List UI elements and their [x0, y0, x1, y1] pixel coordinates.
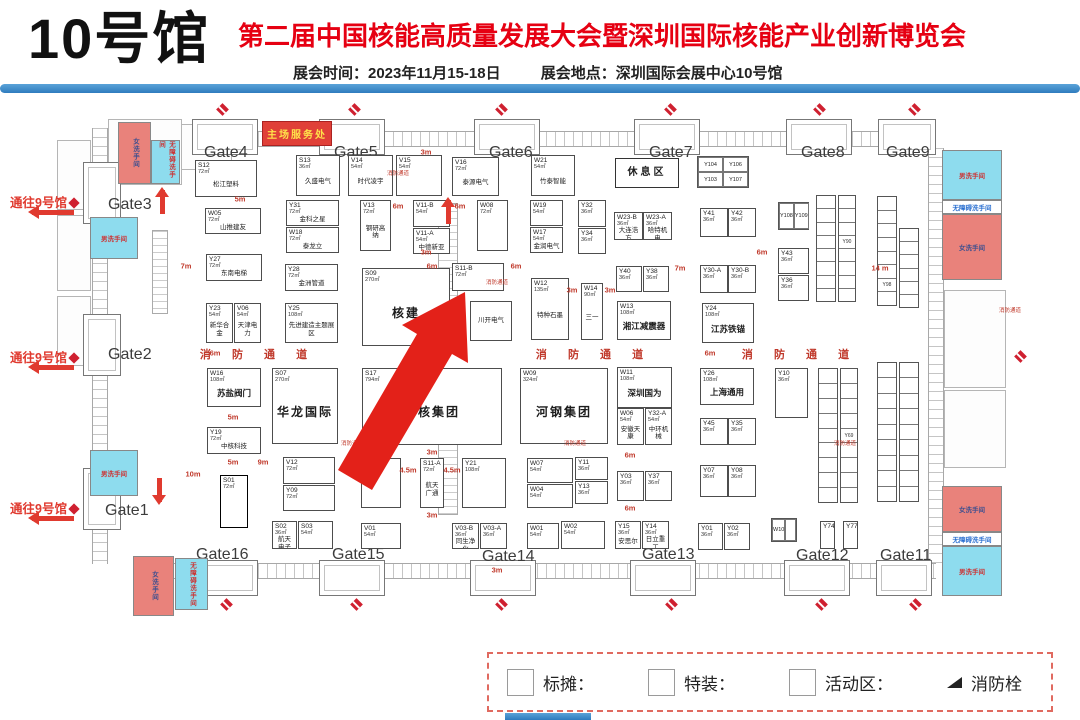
booth-S03: S0354㎡ [298, 521, 333, 549]
booth-Y30-B: Y30-B36㎡ [728, 265, 756, 293]
booth-Y43: Y4336㎡ [778, 248, 809, 274]
hall-number: 10号馆 [28, 0, 210, 75]
dimension-label: 3m [567, 286, 578, 295]
legend-label: 活动区： [825, 670, 893, 695]
legend-label: 消防栓 [971, 670, 1022, 695]
dimension-label: 9m [258, 458, 269, 467]
booth-W09: W09324㎡河钢集团 [520, 368, 608, 444]
fire-lane-label-small: 消防通道 [341, 439, 363, 447]
gate-label: Gate3 [108, 196, 152, 214]
booth-Y45: Y4536㎡ [700, 418, 728, 445]
booth-W04: W0454㎡ [527, 484, 573, 508]
standard-booth-swatch [507, 669, 534, 696]
fire-hydrant-icon [947, 677, 962, 688]
small-booth-strip: Y69 [840, 368, 858, 503]
dimension-label: 6m [705, 349, 716, 358]
booth-Y15: Y1536㎡安思尔 [615, 521, 641, 549]
booth-Y11: Y1136㎡ [575, 457, 608, 480]
legend-item-fire-hydrant: 消防栓 [947, 670, 1022, 695]
booth-Y36: Y3636㎡ [778, 275, 809, 301]
fire-hydrant-marker [348, 103, 361, 116]
booth-Y09: Y0972㎡ [283, 485, 335, 511]
booth-W13: W13108㎡湘江减震器 [617, 301, 671, 340]
gate-module [876, 560, 932, 596]
booth-W18: W1872㎡泰龙立 [286, 227, 339, 253]
booth-S01: S0172㎡ [220, 475, 248, 528]
left-arrow-icon [32, 516, 74, 521]
gate-label: Gate11 [880, 547, 931, 565]
fire-lane-label: 消 防 通 道 [536, 346, 652, 362]
booth-Y40: Y4036㎡ [616, 266, 642, 292]
booth-V05: V05108㎡ [361, 458, 401, 508]
booth-S12: S1272㎡松江塑料 [195, 160, 257, 197]
up-arrow-icon [160, 190, 165, 214]
dimension-label: 6m [625, 504, 636, 513]
booth-Y35: Y3536㎡ [728, 418, 756, 445]
booth-S13: S1336㎡久盛电气 [296, 155, 340, 196]
booth-W23-A: W23-A36㎡哈特机电 [643, 212, 672, 240]
dimension-label: 3m [492, 566, 503, 575]
booth-Y10: Y1036㎡ [775, 368, 808, 418]
booth-V03-A: V03-A36㎡ [480, 523, 507, 549]
outer-structure [944, 390, 1006, 468]
booth-W01: W0154㎡ [527, 523, 559, 549]
gate-label: Gate14 [482, 548, 534, 566]
fire-hydrant-marker [350, 598, 363, 611]
booth-Y07: Y0736㎡ [700, 465, 728, 497]
dimension-label: 6m [393, 202, 404, 211]
dimension-label: 10m [185, 470, 200, 479]
fire-lane-label: 消 防 通 道 [742, 346, 858, 362]
small-booth-grid: Y104Y106Y103Y107 [697, 156, 749, 188]
booth-W06: W0654㎡安徽天康 [617, 408, 644, 445]
booth-Y27: Y2772㎡东南电梯 [206, 254, 262, 281]
dimension-label: 3m [421, 248, 432, 257]
fire-lane-label: 消 防 通 道 [200, 346, 316, 362]
booth-Y21: Y21108㎡ [462, 458, 506, 508]
booth-W08: W0872㎡ [477, 200, 508, 251]
restroom-men_room: 男洗手间 [942, 546, 1002, 596]
fire-hydrant-marker [665, 598, 678, 611]
restroom-women_room: 女洗手间 [118, 122, 151, 184]
booth-W11: W11108㎡深圳国为 [617, 367, 672, 408]
diamond-icon [68, 352, 79, 363]
booth: 川开电气 [470, 301, 512, 341]
diamond-icon [68, 503, 79, 514]
service-desk-label: 主场服务处 [267, 126, 327, 141]
restroom-men_room: 男洗手间 [942, 150, 1002, 200]
restroom-access_room: 无障碍洗手间 [942, 200, 1002, 214]
small-booth-grid: W10 [771, 518, 797, 542]
expo-time: 展会时间：2023年11月15-18日 [293, 65, 501, 82]
outer-structure [57, 215, 91, 291]
booth-W07: W0754㎡ [527, 458, 573, 483]
booth-S07: S07270㎡华龙国际 [272, 368, 338, 444]
dimension-label: 6m [511, 262, 522, 271]
booth-Y01: Y0136㎡ [698, 523, 723, 550]
gate-module [319, 560, 385, 596]
gate-label: Gate2 [108, 346, 152, 364]
booth-V12: V1272㎡ [283, 457, 335, 484]
booth-V16: V1672㎡泰源电气 [452, 157, 499, 196]
gate-label: Gate8 [801, 144, 845, 162]
fire-hydrant-marker [495, 598, 508, 611]
dimension-label: 5m [228, 413, 239, 422]
dimension-label: 14 m [871, 264, 888, 273]
restroom-access_room: 无障碍洗手间 [151, 140, 180, 184]
restroom-access_room: 无障碍洗手间 [175, 558, 208, 610]
small-booth-strip [818, 368, 838, 503]
special-booth-swatch [648, 669, 675, 696]
gate-module [630, 560, 696, 596]
booth-Y08: Y0836㎡ [728, 465, 756, 497]
booth-Y03: Y0336㎡ [617, 471, 644, 501]
fire-hydrant-marker [909, 598, 922, 611]
booth-W12: W12135㎡特种石墨 [531, 278, 569, 340]
booth-Y26: Y26108㎡上海通用 [700, 368, 754, 405]
gate-label: Gate1 [105, 502, 149, 520]
booth-W17: W1754㎡金润电气 [530, 227, 563, 253]
fire-hydrant-marker [813, 103, 826, 116]
gate-module [83, 162, 121, 224]
gate-label: Gate9 [886, 144, 930, 162]
screenshot-root: 10号馆 第二届中国核能高质量发展大会暨深圳国际核能产业创新博览会 展会时间：2… [0, 0, 1080, 720]
small-booth-strip: Y90 [838, 195, 856, 302]
escalator [152, 230, 168, 314]
up-arrow-icon [446, 200, 451, 224]
dimension-label: 3m [421, 148, 432, 157]
legend-item-special-booth: 特装： [648, 669, 735, 696]
legend-item-activity-area: 活动区： [789, 669, 893, 696]
restroom-men_room: 男洗手间 [90, 450, 138, 496]
booth-W19: W1954㎡ [530, 200, 563, 226]
fire-lane-label-small: 消防通道 [486, 278, 508, 286]
fire-hydrant-marker [1014, 350, 1027, 363]
booth-Y19: Y1972㎡中核科技 [207, 427, 261, 454]
header-divider-bar [0, 84, 1080, 93]
footer-blue-bar [505, 713, 591, 720]
dimension-label: 7m [181, 262, 192, 271]
expo-venue: 展会地点：深圳国际会展中心10号馆 [541, 65, 783, 82]
booth-Y13: Y1336㎡ [575, 481, 608, 504]
small-booth-strip [899, 362, 919, 502]
booth-Y38: Y3836㎡ [643, 266, 669, 292]
dimension-label: 4.5m [443, 466, 460, 475]
dimension-label: 6m [757, 248, 768, 257]
booth-S02: S0236㎡航天电子 [272, 521, 297, 549]
booth-Y32-A: Y32-A54㎡中环机械 [645, 408, 672, 445]
booth-W14: W1490㎡三一 [581, 283, 603, 340]
fire-hydrant-marker [216, 103, 229, 116]
small-booth-strip [899, 228, 919, 308]
fire-lane-label-small: 消防通道 [564, 439, 586, 447]
dimension-label: 4.5m [399, 466, 416, 475]
restroom-women_room: 女洗手间 [942, 214, 1002, 280]
booth-Y32: Y3236㎡ [578, 200, 606, 227]
fire-hydrant-marker [908, 103, 921, 116]
booth-S11-B: S11-B72㎡ [452, 263, 504, 291]
fire-lane-label-small: 消防通道 [387, 169, 409, 177]
booth-Y77: Y77 [843, 521, 858, 549]
rest-area: 休息区 [615, 158, 679, 188]
booth-Y28: Y2872㎡金洲管道 [285, 264, 338, 291]
service-desk: 主场服务处 [262, 121, 332, 146]
legend-item-standard-booth: 标摊： [507, 669, 594, 696]
booth-Y02: Y0236㎡ [724, 523, 750, 550]
booth-V13: V1372㎡钢研高纳 [360, 200, 391, 251]
dimension-label: 3m [427, 448, 438, 457]
fire-hydrant-marker [664, 103, 677, 116]
booth-Y74: Y74 [820, 521, 835, 549]
legend-label: 标摊： [543, 670, 594, 695]
booth-V06: V0654㎡天津电力 [234, 303, 261, 343]
dimension-label: 6m [625, 451, 636, 460]
dimension-label: 5m [235, 195, 246, 204]
booth-W02: W0254㎡ [561, 521, 605, 549]
booth-V03-B: V03-B36㎡同生净化 [452, 523, 479, 549]
booth-W21: W2154㎡竹泰智能 [531, 155, 575, 196]
small-booth-strip: Y98 [877, 196, 897, 306]
expo-meta: 展会时间：2023年11月15-18日 展会地点：深圳国际会展中心10号馆 [293, 62, 818, 83]
activity-area-swatch [789, 669, 816, 696]
restroom-women_room: 女洗手间 [133, 556, 174, 616]
booth-W16: W16108㎡苏盐阀门 [207, 368, 261, 407]
booth-Y25: Y25108㎡先进建造主题展区 [285, 303, 338, 343]
booth-Y31: Y3172㎡金科之星 [286, 200, 339, 226]
booth-Y34: Y3436㎡ [578, 228, 606, 254]
dimension-label: 7m [675, 264, 686, 273]
booth-Y30-A: Y30-A36㎡ [700, 265, 728, 293]
booth-Y42: Y4236㎡ [728, 208, 756, 237]
left-arrow-icon [32, 365, 74, 370]
restroom-access_room: 无障碍洗手间 [942, 532, 1002, 546]
small-booth-strip [877, 362, 897, 502]
booth-Y41: Y4136㎡ [700, 208, 728, 237]
booth-Y23: Y2354㎡新华合金 [206, 303, 233, 343]
booth-S17: S17794㎡中核集团 [362, 368, 502, 445]
outer-structure [944, 290, 1006, 388]
gate-module [83, 314, 121, 376]
legend-label: 特装： [684, 670, 735, 695]
gate-label: Gate12 [796, 547, 848, 565]
booth-S11-A: S11-A72㎡航天广通 [420, 458, 444, 508]
expo-title: 第二届中国核能高质量发展大会暨深圳国际核能产业创新博览会 [238, 16, 1038, 53]
fire-lane-label-small: 消防通道 [834, 439, 856, 447]
booth-V01: V0154㎡ [361, 523, 401, 549]
restroom-men_room: 男洗手间 [90, 217, 138, 259]
dimension-label: 3m [427, 511, 438, 520]
small-booth-strip [816, 195, 836, 302]
fire-hydrant-marker [495, 103, 508, 116]
booth-Y24: Y24108㎡江苏铁锚 [702, 303, 754, 343]
dimension-label: 5m [228, 458, 239, 467]
booth-Y37: Y3736㎡ [645, 471, 672, 501]
gate-module [784, 560, 850, 596]
small-booth-grid: Y108Y109 [778, 202, 809, 230]
dimension-label: 3m [605, 286, 616, 295]
legend: 标摊： 特装： 活动区： 消防栓 [487, 652, 1053, 712]
fire-lane-label-small: 消防通道 [999, 306, 1021, 314]
booth-W23-B: W23-B36㎡大连浩方 [614, 212, 643, 240]
restroom-women_room: 女洗手间 [942, 486, 1002, 532]
dimension-label: 6m [455, 202, 466, 211]
down-arrow-icon [157, 478, 162, 502]
booth-W05: W0572㎡山推建友 [205, 208, 261, 234]
diamond-icon [68, 197, 79, 208]
fire-hydrant-marker [220, 598, 233, 611]
fire-hydrant-marker [815, 598, 828, 611]
left-arrow-icon [32, 210, 74, 215]
booth-S09: S09270㎡核建 [362, 268, 450, 346]
dimension-label: 6m [427, 262, 438, 271]
booth-Y14: Y1436㎡日立重工 [642, 521, 669, 549]
